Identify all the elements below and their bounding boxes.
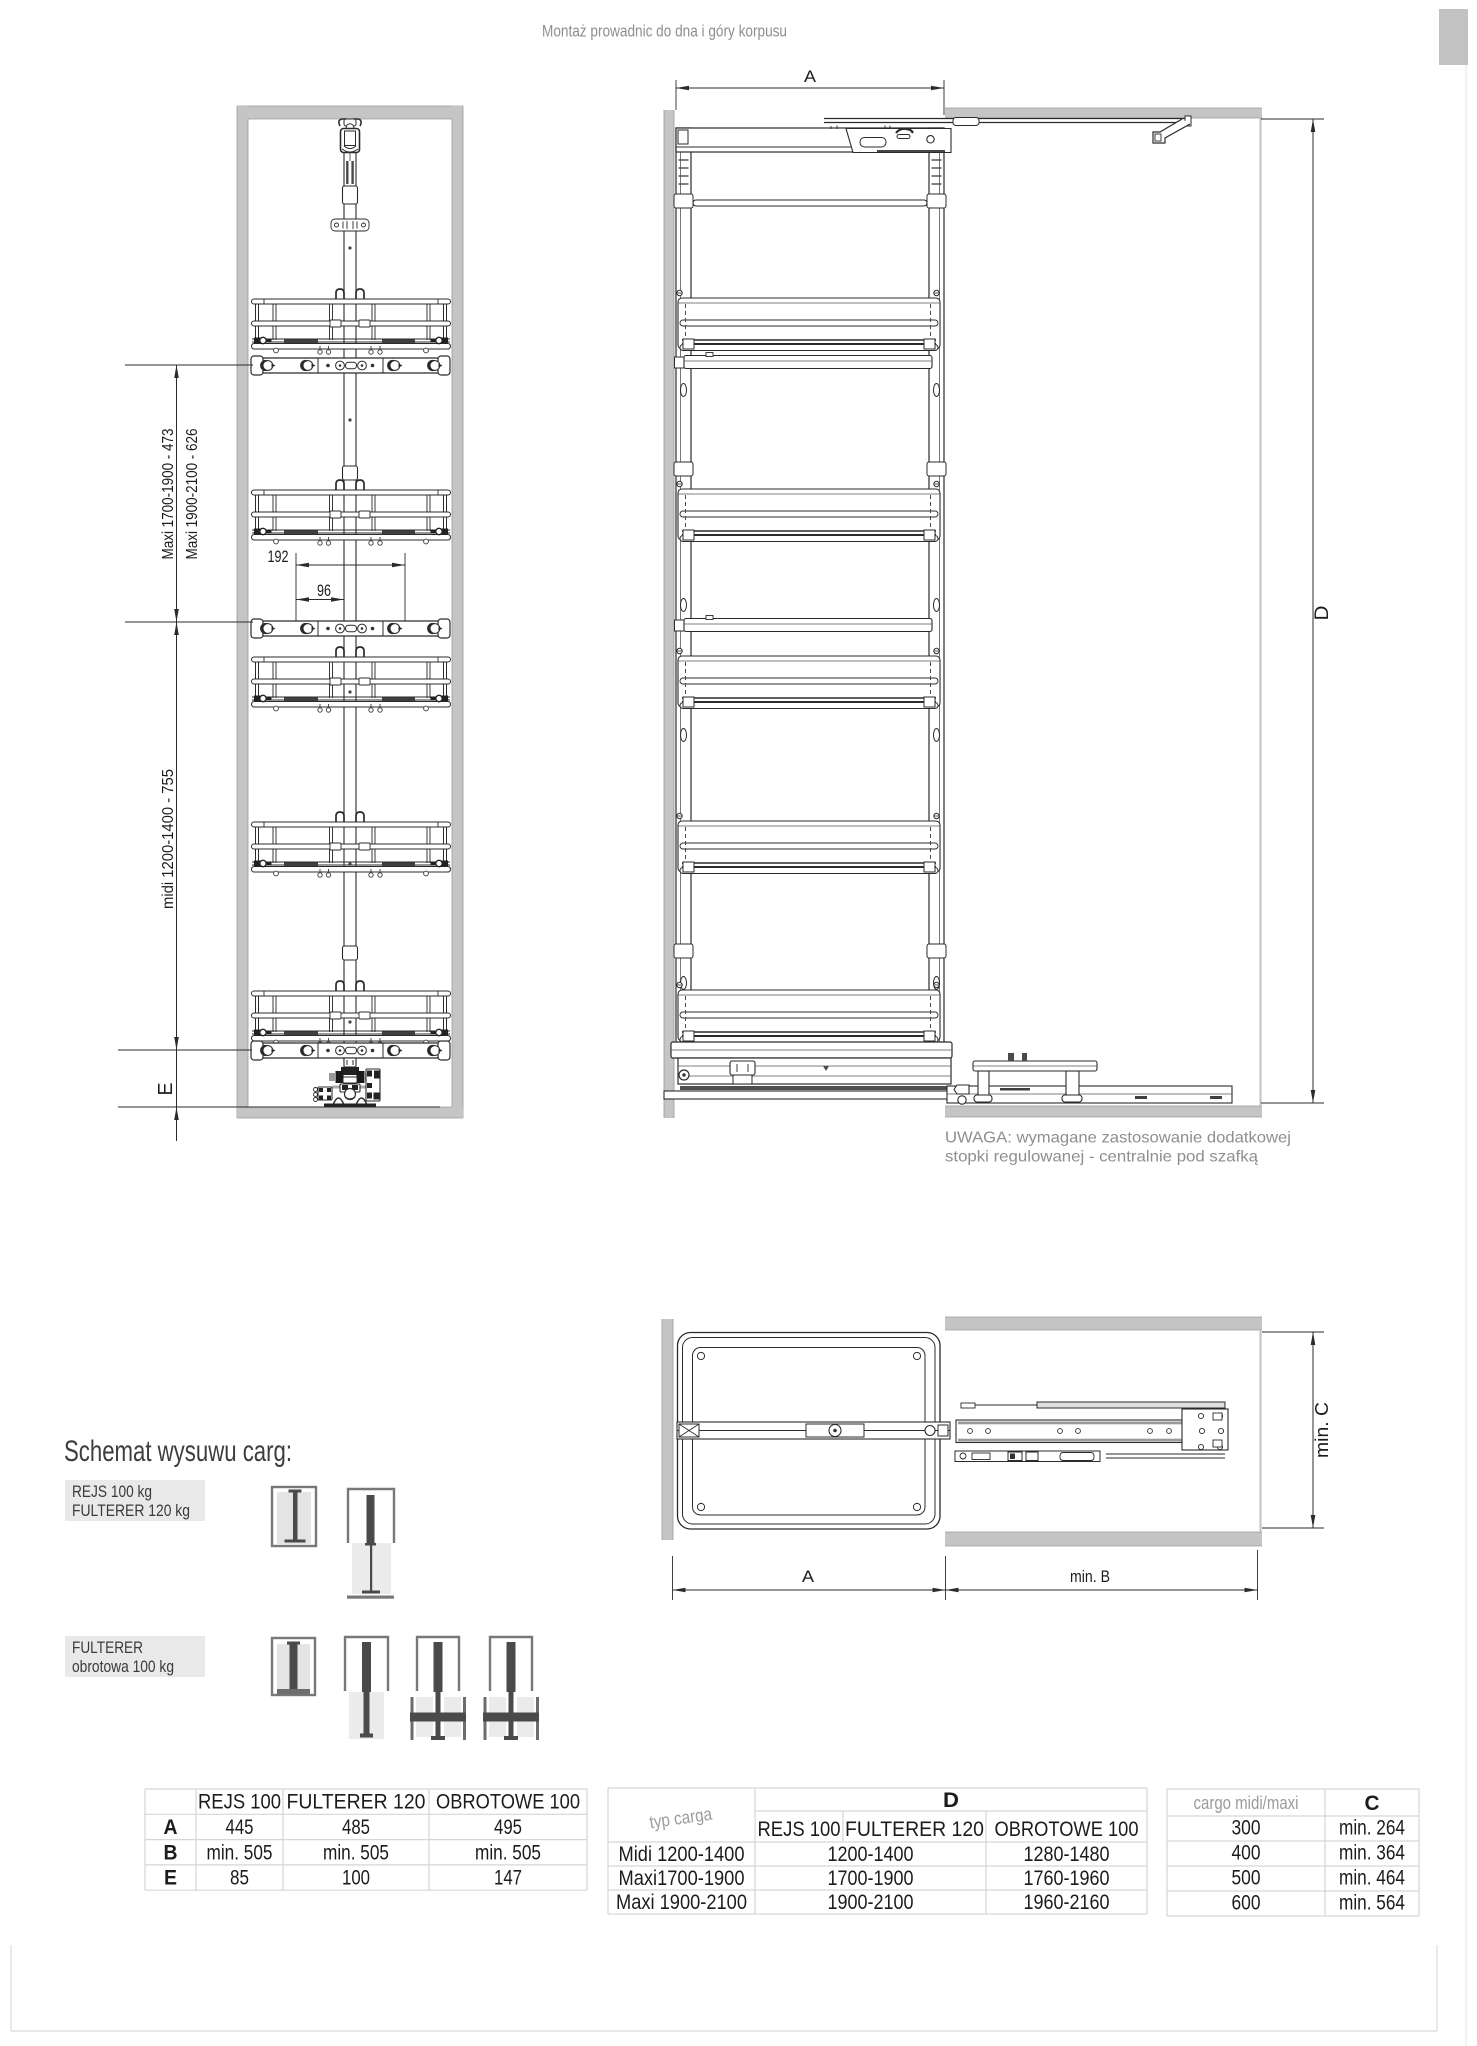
svg-text:REJS 100: REJS 100 xyxy=(198,1791,281,1814)
svg-text:UWAGA: wymagane zastosowanie d: UWAGA: wymagane zastosowanie dodatkowej xyxy=(945,1130,1291,1147)
svg-text:E: E xyxy=(155,1083,177,1096)
svg-text:midi 1200-1400 - 755: midi 1200-1400 - 755 xyxy=(160,769,177,909)
svg-text:500: 500 xyxy=(1232,1867,1261,1890)
svg-text:B: B xyxy=(164,1841,178,1864)
svg-text:D: D xyxy=(1312,606,1333,621)
svg-text:600: 600 xyxy=(1232,1892,1261,1915)
svg-text:REJS 100 kg: REJS 100 kg xyxy=(72,1482,152,1501)
svg-text:Maxi1700-1900: Maxi1700-1900 xyxy=(619,1867,745,1890)
svg-text:485: 485 xyxy=(342,1816,370,1839)
svg-text:Montaż prowadnic do dna i góry: Montaż prowadnic do dna i góry korpusu xyxy=(542,23,787,41)
svg-text:cargo midi/maxi: cargo midi/maxi xyxy=(1194,1793,1299,1813)
svg-text:A: A xyxy=(164,1816,178,1839)
svg-text:1760-1960: 1760-1960 xyxy=(1024,1867,1110,1890)
svg-text:100: 100 xyxy=(342,1867,370,1890)
svg-text:min. C: min. C xyxy=(1312,1402,1332,1458)
svg-text:1280-1480: 1280-1480 xyxy=(1024,1843,1110,1866)
svg-text:1960-2160: 1960-2160 xyxy=(1024,1891,1110,1914)
svg-text:D: D xyxy=(943,1789,959,1812)
svg-text:min. 364: min. 364 xyxy=(1339,1842,1405,1865)
svg-text:Maxi 1900-2100 - 626: Maxi 1900-2100 - 626 xyxy=(184,428,201,559)
svg-text:C: C xyxy=(1365,1792,1380,1815)
svg-text:min. 564: min. 564 xyxy=(1339,1892,1405,1915)
svg-text:REJS 100: REJS 100 xyxy=(758,1818,841,1841)
svg-text:min. 505: min. 505 xyxy=(207,1841,273,1864)
svg-text:1900-2100: 1900-2100 xyxy=(828,1891,914,1914)
svg-text:445: 445 xyxy=(226,1816,254,1839)
svg-text:400: 400 xyxy=(1232,1842,1261,1865)
svg-text:A: A xyxy=(802,1567,815,1586)
svg-text:495: 495 xyxy=(494,1816,522,1839)
svg-text:obrotowa 100 kg: obrotowa 100 kg xyxy=(72,1657,174,1676)
svg-text:Midi 1200-1400: Midi 1200-1400 xyxy=(619,1843,745,1866)
svg-text:FULTERER 120: FULTERER 120 xyxy=(845,1818,984,1841)
svg-text:147: 147 xyxy=(494,1867,522,1890)
svg-text:1700-1900: 1700-1900 xyxy=(828,1867,914,1890)
svg-text:Schemat wysuwu carg:: Schemat wysuwu carg: xyxy=(64,1435,292,1468)
svg-text:OBROTOWE 100: OBROTOWE 100 xyxy=(995,1818,1139,1841)
svg-text:1200-1400: 1200-1400 xyxy=(828,1843,914,1866)
svg-text:Maxi 1700-1900 - 473: Maxi 1700-1900 - 473 xyxy=(160,428,177,559)
svg-text:FULTERER: FULTERER xyxy=(72,1638,143,1657)
svg-text:85: 85 xyxy=(230,1867,249,1890)
svg-text:stopki regulowanej - centralni: stopki regulowanej - centralnie pod szaf… xyxy=(945,1149,1258,1166)
svg-text:min. B: min. B xyxy=(1070,1567,1110,1586)
svg-text:FULTERER 120 kg: FULTERER 120 kg xyxy=(72,1501,190,1520)
svg-text:E: E xyxy=(164,1867,177,1890)
svg-text:192: 192 xyxy=(268,547,289,566)
svg-text:Maxi 1900-2100: Maxi 1900-2100 xyxy=(616,1891,747,1914)
svg-text:OBROTOWE 100: OBROTOWE 100 xyxy=(436,1791,580,1814)
svg-text:min. 464: min. 464 xyxy=(1339,1867,1405,1890)
svg-text:96: 96 xyxy=(317,581,331,600)
svg-text:FULTERER 120: FULTERER 120 xyxy=(287,1791,426,1814)
svg-text:min. 264: min. 264 xyxy=(1339,1817,1405,1840)
svg-text:min. 505: min. 505 xyxy=(475,1841,541,1864)
svg-text:min. 505: min. 505 xyxy=(323,1841,389,1864)
svg-text:A: A xyxy=(804,67,817,86)
svg-text:300: 300 xyxy=(1232,1817,1261,1840)
